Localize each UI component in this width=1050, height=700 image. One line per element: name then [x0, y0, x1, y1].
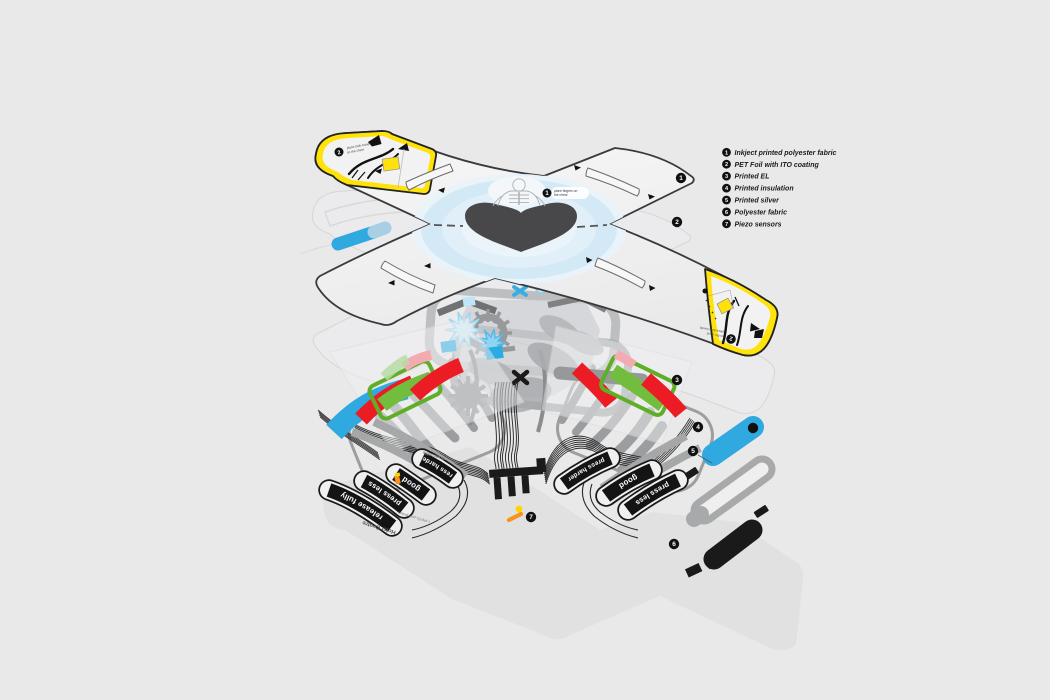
- svg-text:3: 3: [725, 174, 728, 180]
- svg-text:Inkject printed polyester fabr: Inkject printed polyester fabric: [735, 150, 837, 157]
- svg-text:Printed EL: Printed EL: [735, 174, 770, 181]
- svg-text:2: 2: [725, 162, 728, 168]
- svg-text:6: 6: [672, 541, 676, 548]
- svg-text:1: 1: [725, 150, 728, 156]
- svg-text:7: 7: [529, 514, 533, 521]
- svg-text:7: 7: [725, 222, 728, 228]
- svg-text:Printed insulation: Printed insulation: [735, 186, 794, 193]
- svg-text:3: 3: [675, 377, 679, 384]
- svg-text:Piezo sensors: Piezo sensors: [735, 221, 782, 228]
- svg-text:1: 1: [679, 175, 683, 182]
- svg-text:2: 2: [675, 219, 679, 226]
- svg-text:Polyester fabric: Polyester fabric: [735, 210, 788, 217]
- svg-text:6: 6: [725, 210, 728, 216]
- svg-text:PET Foil with ITO coating: PET Foil with ITO coating: [735, 162, 820, 169]
- svg-text:place fingers on: place fingers on: [553, 189, 577, 193]
- svg-text:4: 4: [696, 424, 700, 431]
- svg-text:5: 5: [691, 448, 695, 455]
- svg-text:Printed silver: Printed silver: [735, 198, 781, 205]
- svg-text:the chest: the chest: [554, 193, 568, 197]
- svg-text:5: 5: [725, 198, 728, 204]
